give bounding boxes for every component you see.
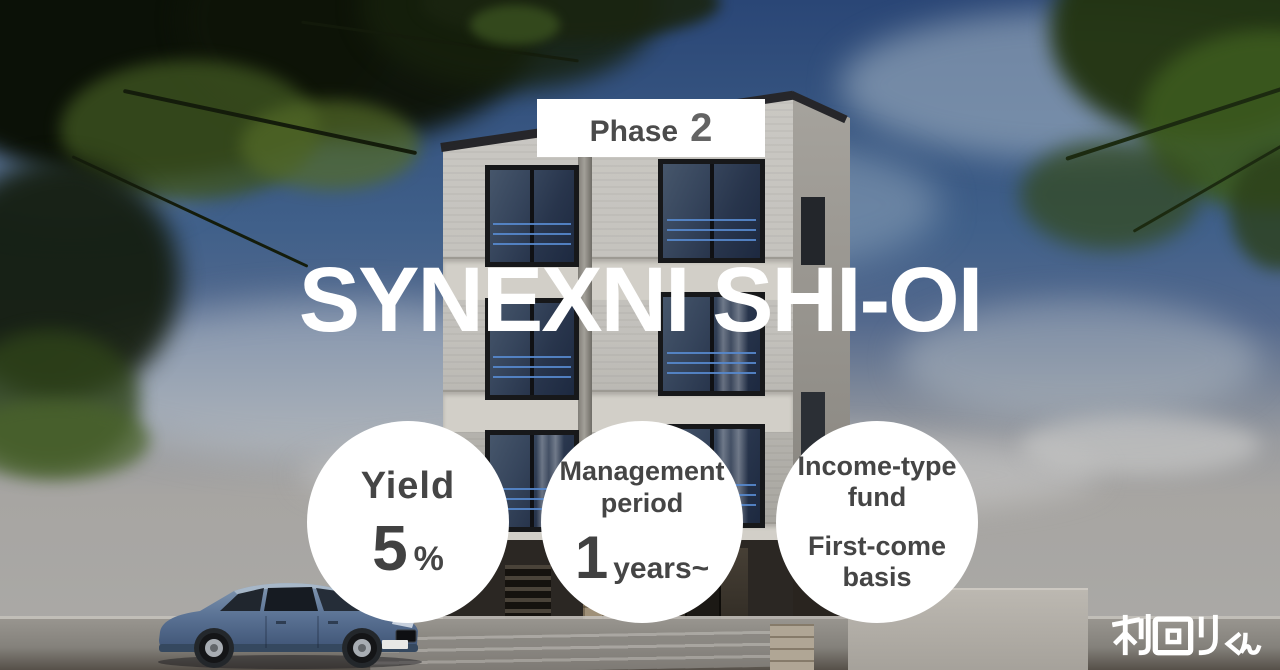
phase-badge-label: Phase [590,103,678,161]
yield-value-row: 5 % [372,516,444,580]
yield-value: 5 [372,516,408,580]
management-period-label: Management period [555,456,730,520]
fund-type-circle: Income-type fund First-come basis [776,421,978,623]
tree-leaves [240,100,420,190]
car-license-plate [382,640,408,649]
sidewalk-steps [370,630,801,670]
stone-pillar [770,624,814,670]
phase-badge-number: 2 [690,99,712,157]
property-banner: Phase 2 SYNEXNI SHI-OI Yield 5 % Managem… [0,0,1280,670]
tree-leaves [1020,140,1200,250]
rimawarikun-logo [1112,612,1264,658]
logo-glyph-ri-kana [1201,617,1215,652]
window [658,159,765,263]
tree-leaves [470,5,560,45]
management-period-value: 1 [575,528,608,588]
phase-badge: Phase 2 [537,99,765,157]
management-period-circle: Management period 1 years~ [541,421,743,623]
yield-label: Yield [361,465,455,508]
logo-glyph-ku-kana [1228,635,1239,653]
management-period-unit: years~ [613,552,709,586]
logo-glyph-n-kana [1241,635,1259,653]
car-side-window [264,587,318,611]
logo-glyph-kai-kanji [1155,619,1190,653]
application-basis-text: First-come basis [788,531,966,593]
management-period-value-row: 1 years~ [575,528,709,588]
logo-glyph-ri-kanji [1115,616,1149,652]
cloud [1020,415,1260,475]
property-title: SYNEXNI SHI-OI [0,254,1280,346]
fund-type-text: Income-type fund [788,451,966,513]
yield-circle: Yield 5 % [307,421,509,623]
yield-unit: % [414,540,444,579]
